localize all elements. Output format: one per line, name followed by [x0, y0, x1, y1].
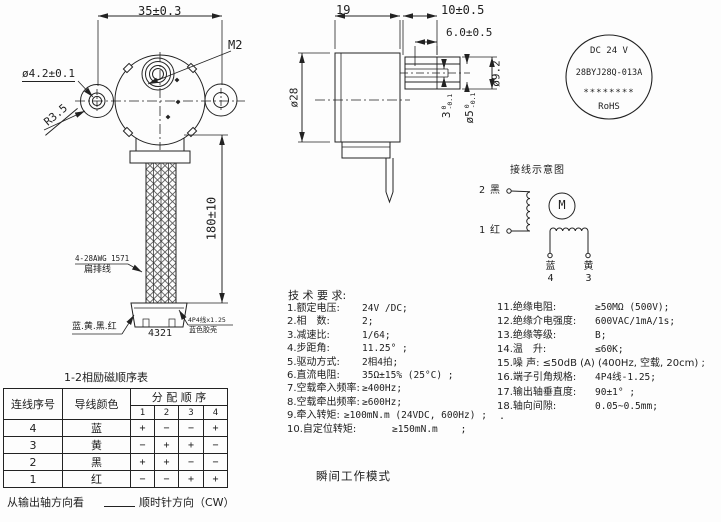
table-row: 3黄 −++−: [4, 437, 228, 454]
tech-item-1: 1.额定电压:24V /DC;: [287, 303, 340, 315]
phase-table-title: 1-2相励磁顺序表: [0, 372, 212, 384]
tech-item-10: 10.自定位转矩:≥150mN.m ;: [287, 424, 356, 436]
tech-item-7: 7.空载牵入频率:≥400Hz;: [287, 383, 360, 395]
tech-item-9: 9.牵入转矩:≥100mN.m (24VDC, 600Hz) ;: [287, 410, 487, 422]
dim-width-label: 35±0.3: [138, 5, 181, 18]
tech-footnote-dot: .: [499, 411, 505, 422]
col-header-wire-color: 导线颜色: [63, 389, 131, 420]
shaft-dia-value: ø5: [464, 110, 476, 123]
col-header-wire-no: 连线序号: [4, 389, 63, 420]
lead-colors-label: 蓝.黄.黑.红: [72, 323, 117, 333]
nameplate-voltage: DC 24 V: [566, 47, 652, 57]
wiring-title: 接线示意图: [510, 165, 565, 176]
body-length-label: 19: [336, 4, 350, 17]
lead-length-dim-label: 180±10: [206, 193, 219, 245]
lead-yellow-number: 3: [582, 273, 595, 284]
tech-item-6: 6.直流电阻:35Ω±15% (25°C) ;: [287, 370, 340, 382]
tech-item-2: 2.相 数:2;: [287, 316, 330, 328]
flat-thickness-value: 3: [441, 112, 453, 119]
motor-symbol: M: [555, 199, 569, 212]
tech-item-4: 4.步距角:11.25° ;: [287, 343, 330, 355]
tech-item-13: 13.绝缘等级:B;: [497, 330, 556, 342]
lead-blue-label: 蓝: [544, 261, 557, 272]
tech-item-18: 18.轴向间隙:0.05~0.5mm;: [497, 401, 556, 413]
tech-item-14: 14.温 升:≤60K;: [497, 344, 546, 356]
boss-dia-label: ø9.2: [491, 55, 504, 93]
terminal-2-label: 2黑: [479, 185, 500, 196]
body-dia-label: ø28: [289, 79, 302, 117]
step-header: 2: [155, 406, 179, 420]
step-header: 1: [131, 406, 155, 420]
connector-color-label: 蓝色胶壳: [189, 327, 217, 335]
pin-order-label: 4321: [148, 328, 172, 339]
stepper-motor-engineering-drawing: 35±0.3 M2 ø4.2±0.1 R3.5 180±10 4-28AWG 1…: [0, 0, 721, 522]
flat-thickness-dim: 30-0.1: [438, 86, 456, 126]
table-row: 2黑 ++−−: [4, 454, 228, 471]
tech-item-15: 15.噪 声: ≤50dB (A) (400Hz, 空载, 20cm) ;: [497, 358, 705, 370]
tech-item-3: 3.减速比:1/64;: [287, 330, 330, 342]
nameplate-stars: ********: [566, 89, 652, 99]
flat-length-label: 6.0±0.5: [446, 27, 492, 39]
step-header: 3: [179, 406, 204, 420]
tech-item-17: 17.输出轴垂直度:90±1° ;: [497, 387, 576, 399]
terminal-1-label: 1红: [479, 225, 500, 236]
table-row: 4蓝 +−−+: [4, 420, 228, 437]
flat-thickness-tolerance: 0-0.1: [441, 94, 454, 110]
tech-item-8: 8.空载牵出频率:≥600Hz;: [287, 397, 360, 409]
tech-item-12: 12.绝缘介电强度:600VAC/1mA/1s;: [497, 316, 576, 328]
front-view-drawing: [44, 16, 245, 334]
wire-type-label: 扁排线: [84, 266, 111, 276]
shaft-dia-tolerance: 0-0.1: [464, 93, 477, 109]
hole-dim-label: ø4.2±0.1: [22, 68, 75, 82]
shaft-length-label: 10±0.5: [441, 4, 484, 17]
direction-note-suffix: 顺时针方向（CW）: [139, 497, 235, 509]
direction-note-prefix: 从输出轴方向看: [7, 497, 84, 509]
wire-gauge-label: 4-28AWG 1571: [75, 255, 129, 263]
step-header: 4: [204, 406, 228, 420]
connector-type-label: 4P4线x1.25: [188, 317, 226, 324]
mode-note: 瞬间工作模式: [316, 470, 391, 483]
direction-line: [104, 506, 135, 507]
wiring-diagram-lines: [507, 189, 590, 258]
thread-label: M2: [228, 39, 242, 52]
lead-yellow-label: 黄: [582, 261, 595, 272]
tech-item-16: 16.端子引角规格:4P4线-1.25;: [497, 372, 576, 384]
shaft-dia-dim: ø50-0.1: [461, 88, 479, 128]
nameplate-model: 28BYJ28Q-013A: [566, 69, 652, 78]
col-header-sequence: 分 配 顺 序: [131, 389, 228, 406]
table-row: 1红 −−++: [4, 471, 228, 488]
nameplate-rohs: RoHS: [566, 103, 652, 113]
lead-blue-number: 4: [544, 273, 557, 284]
tech-item-11: 11.绝缘电阻:≥50MΩ (500V);: [497, 302, 556, 314]
tech-specs-title: 技 术 要 求:: [288, 290, 346, 302]
phase-sequence-table: 连线序号 导线颜色 分 配 顺 序 1 2 3 4 4蓝 +−−+ 3黄 −++…: [3, 388, 228, 488]
tech-item-5: 5.驱动方式:2相4拍;: [287, 357, 340, 369]
